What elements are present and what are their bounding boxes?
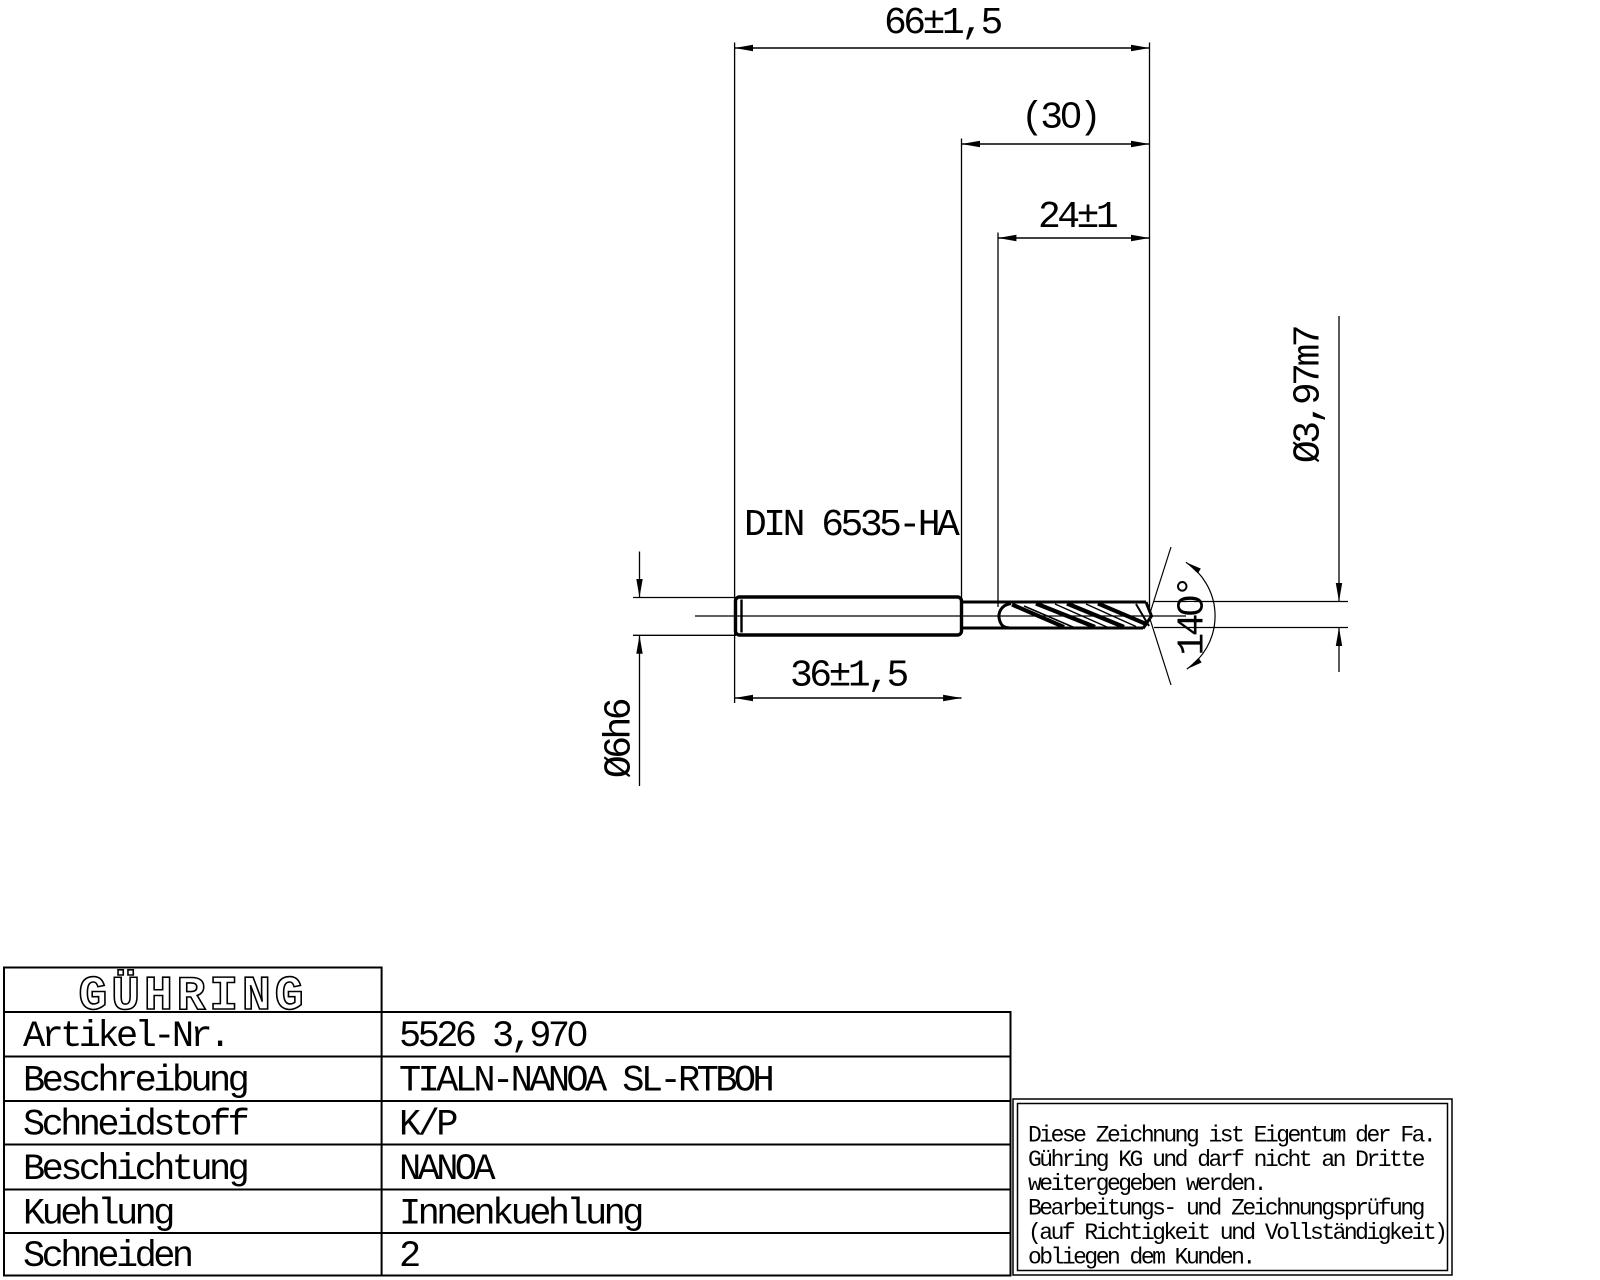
svg-text:Ø6h6: Ø6h6 xyxy=(599,699,642,778)
svg-text:Schneidstoff: Schneidstoff xyxy=(23,1105,248,1147)
svg-text:66±1,5: 66±1,5 xyxy=(884,2,1002,45)
svg-text:Innenkuehlung: Innenkuehlung xyxy=(399,1194,642,1236)
svg-text:Artikel-Nr.: Artikel-Nr. xyxy=(23,1016,228,1058)
svg-text:Diese Zeichnung ist Eigentum d: Diese Zeichnung ist Eigentum der Fa. xyxy=(1028,1123,1434,1149)
svg-text:TIALN-NANOA SL-RTBOH: TIALN-NANOA SL-RTBOH xyxy=(399,1061,772,1103)
svg-text:2: 2 xyxy=(399,1236,419,1278)
svg-text:5526 3,970: 5526 3,970 xyxy=(399,1016,586,1058)
svg-text:24±1: 24±1 xyxy=(1038,196,1117,239)
svg-text:Kuehlung: Kuehlung xyxy=(23,1194,173,1236)
svg-text:Bearbeitungs- und Zeichnungspr: Bearbeitungs- und Zeichnungsprüfung xyxy=(1028,1196,1424,1222)
svg-text:K/P: K/P xyxy=(399,1105,457,1147)
svg-text:140°: 140° xyxy=(1172,578,1215,655)
svg-text:Schneiden: Schneiden xyxy=(23,1236,191,1278)
svg-text:obliegen dem Kunden.: obliegen dem Kunden. xyxy=(1028,1244,1254,1270)
svg-text:36±1,5: 36±1,5 xyxy=(790,655,908,698)
svg-text:(30): (30) xyxy=(1021,97,1098,140)
svg-text:weitergegeben werden.: weitergegeben werden. xyxy=(1028,1171,1265,1197)
svg-text:NANOA: NANOA xyxy=(399,1149,496,1191)
svg-text:Beschichtung: Beschichtung xyxy=(23,1149,248,1191)
svg-text:Beschreibung: Beschreibung xyxy=(23,1061,248,1103)
svg-text:Ø3,97m7: Ø3,97m7 xyxy=(1288,327,1331,463)
svg-text:Gühring KG und darf nicht an D: Gühring KG und darf nicht an Dritte xyxy=(1028,1147,1425,1173)
svg-text:DIN 6535-HA: DIN 6535-HA xyxy=(744,504,960,547)
svg-text:(auf Richtigkeit und Vollständ: (auf Richtigkeit und Vollständigkeit) xyxy=(1028,1220,1445,1246)
